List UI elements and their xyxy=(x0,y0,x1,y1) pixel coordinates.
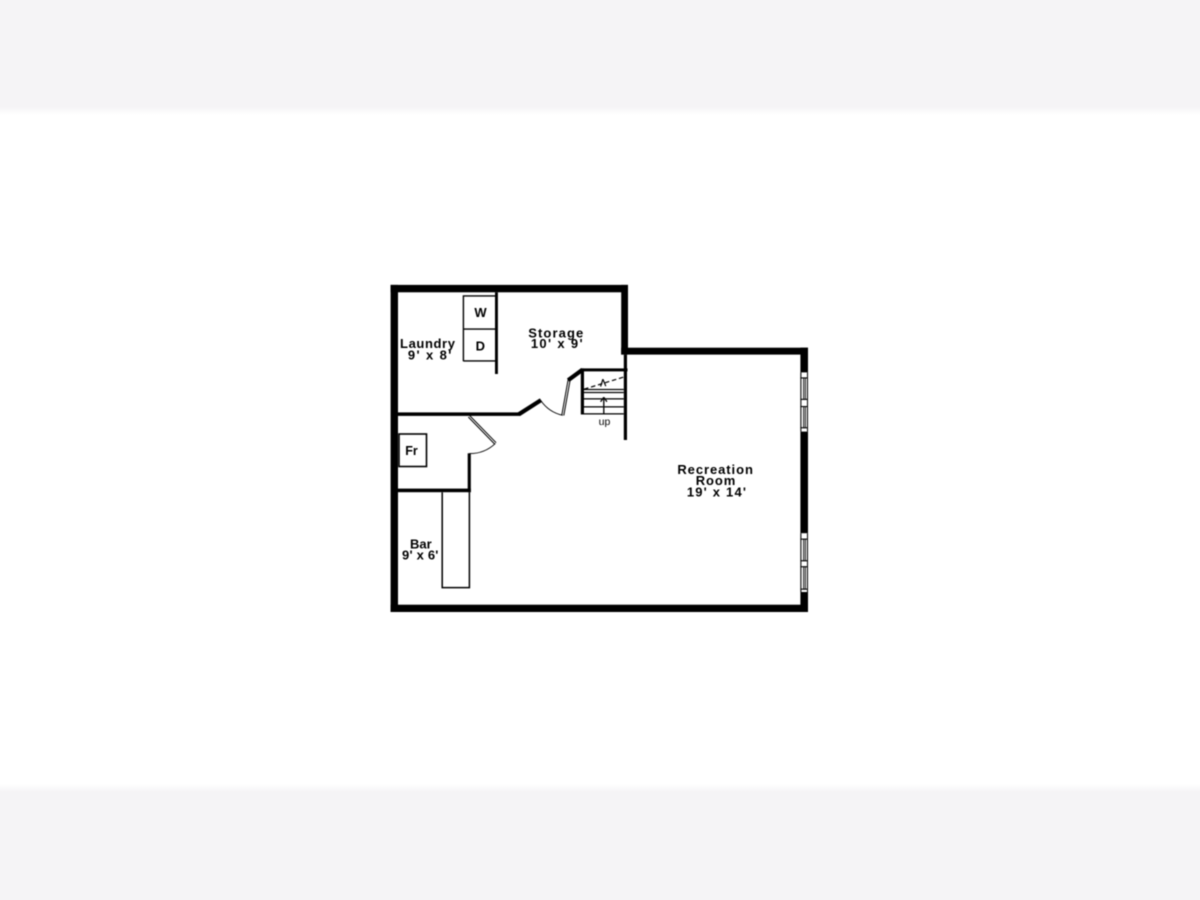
svg-text:D: D xyxy=(476,339,485,354)
svg-text:9' x 8': 9' x 8' xyxy=(408,348,453,363)
svg-text:W: W xyxy=(474,305,487,320)
svg-text:9' x 6': 9' x 6' xyxy=(402,547,439,562)
svg-text:up: up xyxy=(599,416,611,428)
svg-text:19' x 14': 19' x 14' xyxy=(687,484,747,499)
svg-text:Fr: Fr xyxy=(405,444,418,458)
svg-text:10' x 9': 10' x 9' xyxy=(531,336,584,351)
